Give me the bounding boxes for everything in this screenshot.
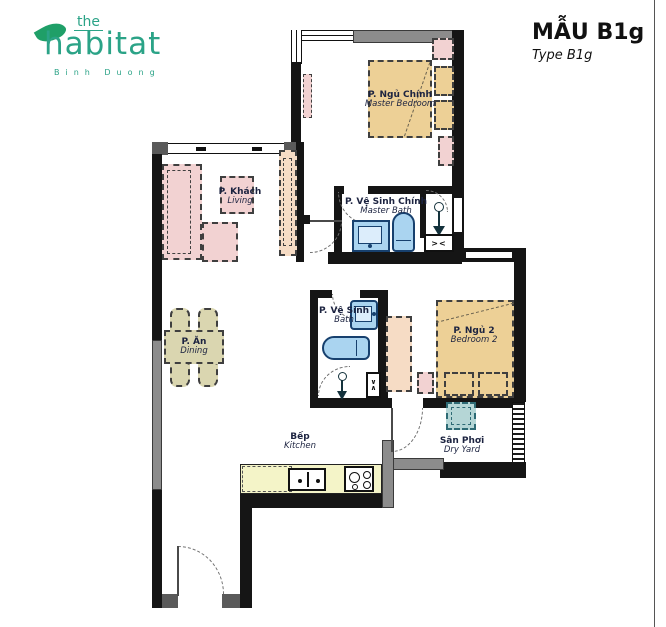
label-en: Bedroom 2 [451,336,498,346]
shower-arrow [337,391,347,400]
nightstand [438,136,454,166]
window-living-top [168,143,296,154]
label-en: Kitchen [284,442,316,452]
label-en: Living [219,197,262,207]
toilet-seam [396,240,411,241]
wall-master-bath-bottom [328,252,462,264]
door-leaf-entrance [177,546,179,596]
page-border-line [654,0,655,627]
door-leaf-bedroom2 [391,408,393,452]
floorplan-page: the habitat Binh Duong MẪU B1g Type B1g [0,0,666,627]
sink-master-bath [352,220,390,252]
cooktop [344,466,374,492]
logo-name: habitat [44,26,161,62]
dining-chair [198,362,218,387]
washing-machine [446,402,476,430]
room-label-bedroom2: P. Ngủ 2 Bedroom 2 [451,326,498,346]
plan-title-block: MẪU B1g Type B1g [532,20,652,63]
label-en: Master Bath [345,207,427,217]
fridge-space [242,466,292,492]
shower-stem [438,211,440,227]
wall-dry-yard-bottom [440,462,526,478]
room-label-dry-yard: Sân Phơi Dry Yard [440,436,484,456]
window-bedroom2 [466,251,512,259]
wall-bedroom2-right [514,262,526,402]
room-label-bath: P. Vệ Sinh Bath [319,306,369,326]
window-mullion [252,147,262,151]
door-arc-bedroom2 [392,408,423,452]
window-master-bedroom-corner [291,30,302,64]
label-en: Dry Yard [440,446,484,456]
logo-location: Binh Duong [54,68,161,77]
room-label-master-bedroom: P. Ngủ Chính Master Bedroom [365,90,435,110]
wall-kitchen-bottom [240,494,382,508]
label-en: Master Bedroom [365,100,435,110]
sink-basin [358,226,382,244]
room-label-kitchen: Bếp Kitchen [284,432,316,452]
burner [363,481,371,489]
plan-title: MẪU B1g [532,20,652,45]
room-label-dining: P. Ăn Dining [180,337,207,357]
wardrobe-bedroom2 [386,316,412,392]
shower-head-icon [336,372,352,402]
kitchen-sink [288,468,326,491]
wall-corridor-right [240,508,252,608]
ac-vent-symbol-vertical: ∨ ∧ [366,372,381,398]
door-jamb-entry-left [162,594,178,608]
burner [363,471,371,479]
habitat-logo: the habitat Binh Duong [26,8,186,88]
sink-divider [307,472,309,487]
sink-faucet [372,312,376,316]
wall-master-bedroom-left [291,62,301,154]
vent-glyph-bottom: ∧ [371,385,377,391]
pillow [444,372,474,396]
sink-drain [368,244,372,248]
pillow [434,100,454,130]
wall-shelf [303,74,312,118]
wall-left-upper [152,154,162,340]
wall-entry-right [240,596,252,608]
sofa-cushion [167,170,191,254]
washing-machine-drum [451,407,471,425]
sink-drain [316,479,320,483]
pillow [478,372,508,396]
burner [349,472,360,483]
dining-chair [170,362,190,387]
label-en: Bath [319,316,369,326]
toilet-master-bath [392,212,415,252]
door-jamb-entry-right [222,594,240,608]
wall-stub-hall [296,215,310,224]
label-en: Dining [180,347,207,357]
tv-cabinet-shelf [283,158,292,246]
nightstand [432,38,454,60]
window-right-column [453,198,463,232]
wall-dry-yard-bottom-left [392,458,444,470]
nightstand [417,372,434,394]
wall-bath-left [310,290,318,398]
pillow [434,66,454,96]
door-arc-entrance [178,546,224,594]
plan-subtitle: Type B1g [532,48,652,63]
room-label-master-bath: P. Vệ Sinh Chính Master Bath [345,197,427,217]
door-leaf-master-bedroom [310,220,342,222]
wall-tv [296,142,304,262]
wall-entry-left [152,596,162,608]
louvre-wall-dry-yard [512,402,525,464]
window-mullion [196,147,206,151]
sink-drain [298,479,302,483]
room-label-living: P. Khách Living [219,187,262,207]
toilet-bath [322,336,370,360]
burner [352,484,358,490]
sofa-chaise [202,222,238,262]
toilet-seam [356,340,357,356]
wall-left-lower [152,490,162,608]
ac-vent-symbol-horizontal: >< [424,234,454,252]
wall-left-middle [152,340,162,490]
wall-master-bath-top [368,186,456,194]
